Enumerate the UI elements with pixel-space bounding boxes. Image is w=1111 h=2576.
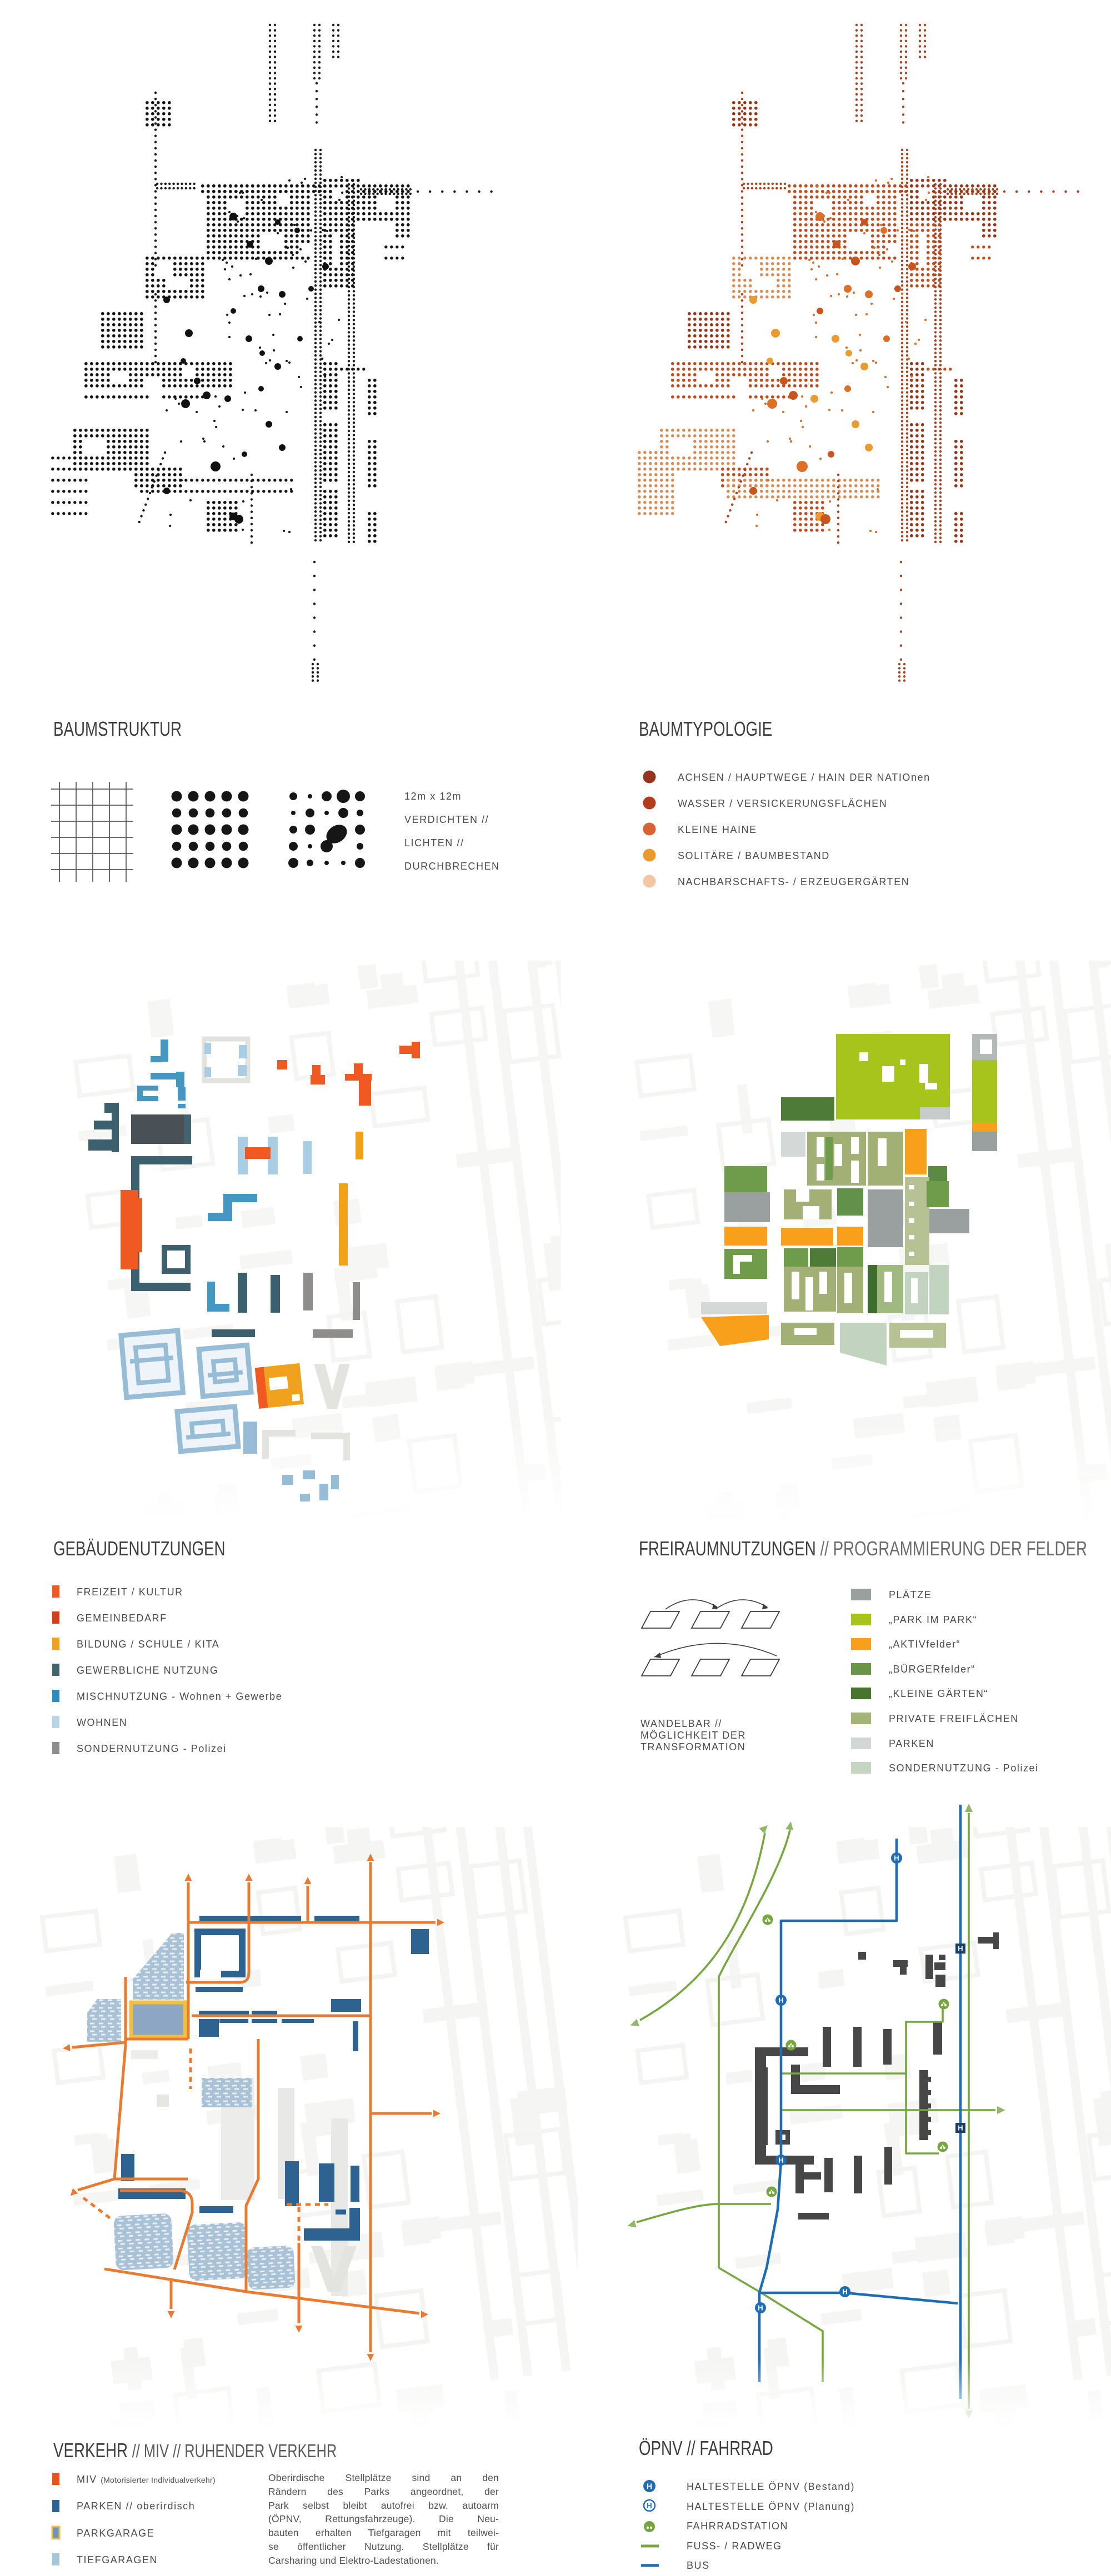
svg-text:H: H — [958, 2124, 963, 2132]
svg-text:H: H — [758, 2304, 763, 2312]
svg-text:H: H — [958, 1945, 963, 1953]
svg-text:H: H — [778, 2156, 783, 2165]
svg-text:H: H — [894, 1854, 899, 1862]
svg-text:H: H — [842, 2288, 847, 2296]
svg-text:H: H — [647, 2502, 652, 2510]
svg-text:H: H — [647, 2482, 652, 2490]
svg-text:H: H — [778, 1996, 783, 2005]
